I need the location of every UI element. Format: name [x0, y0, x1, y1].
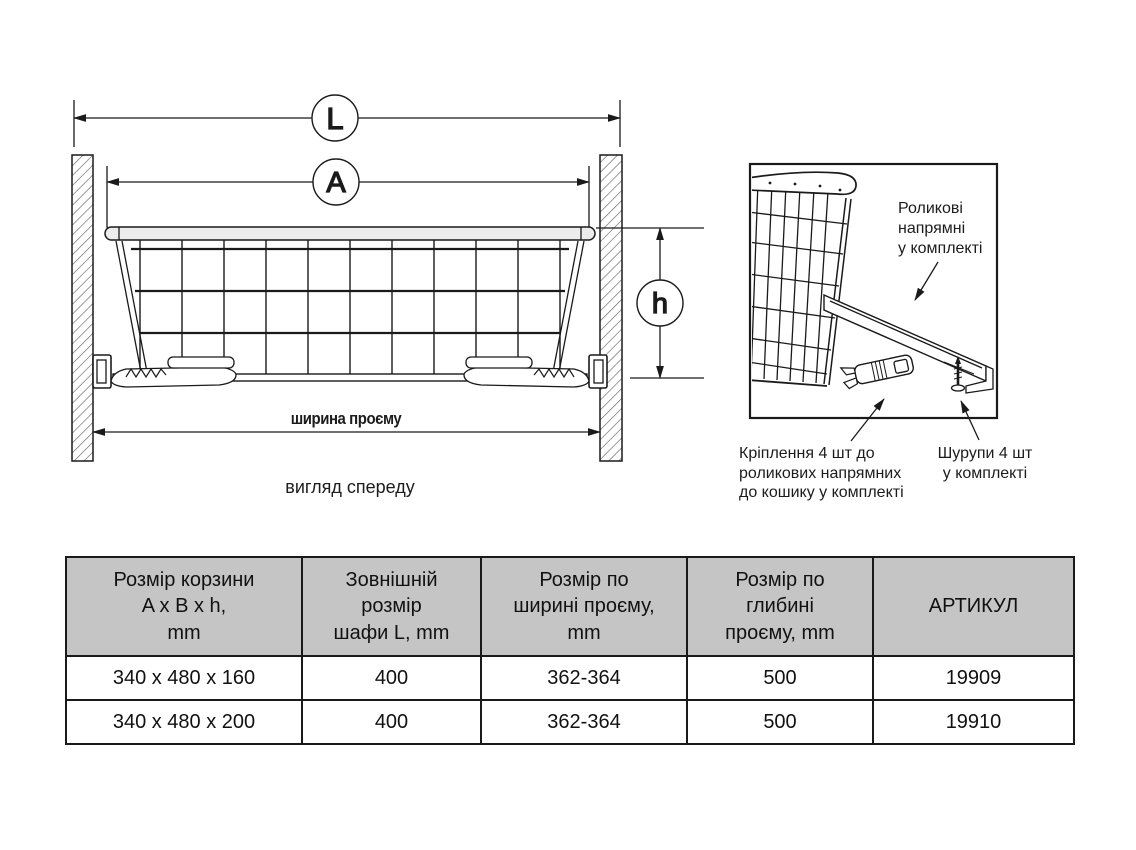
dimension-L: L — [74, 95, 620, 147]
cell-opening-depth: 500 — [687, 656, 873, 700]
col-header-article: АРТИКУЛ — [873, 557, 1074, 656]
cell-cabinet-size: 400 — [302, 700, 481, 744]
right-panel-hatch — [600, 155, 622, 461]
left-roller-bracket — [93, 355, 236, 388]
cell-article: 19910 — [873, 700, 1074, 744]
page: L A — [0, 0, 1136, 850]
rail-included-label: Роликові напрямні у комплекті — [898, 199, 1010, 259]
col-header-opening-depth: Розмір по глибині проєму, mm — [687, 557, 873, 656]
dimension-A: A — [107, 159, 589, 228]
cell-basket-size: 340 x 480 x 160 — [66, 656, 302, 700]
spec-table: Розмір корзини A x B x h, mm Зовнішній р… — [65, 556, 1075, 745]
clip-included-label: Кріплення 4 шт до роликових напрямних до… — [739, 444, 939, 503]
cell-basket-size: 340 x 480 x 200 — [66, 700, 302, 744]
front-view-caption: вигляд спереду — [250, 477, 450, 498]
cell-cabinet-size: 400 — [302, 656, 481, 700]
col-header-basket-size: Розмір корзини A x B x h, mm — [66, 557, 302, 656]
dim-label-L: L — [326, 101, 343, 136]
cell-opening-depth: 500 — [687, 700, 873, 744]
dim-label-A: A — [326, 167, 346, 199]
cell-article: 19909 — [873, 656, 1074, 700]
right-roller-bracket — [464, 355, 607, 388]
table-row: 340 x 480 x 200 400 362-364 500 19910 — [66, 700, 1074, 744]
col-header-opening-width: Розмір по ширині проєму, mm — [481, 557, 687, 656]
table-row: 340 x 480 x 160 400 362-364 500 19909 — [66, 656, 1074, 700]
col-header-cabinet-size: Зовнішній розмір шафи L, mm — [302, 557, 481, 656]
opening-width-label: ширина проєму — [245, 409, 447, 429]
cell-opening-width: 362-364 — [481, 700, 687, 744]
basket-top-rail — [105, 227, 595, 240]
left-panel-hatch — [72, 155, 93, 461]
screws-included-label: Шурупи 4 шт у комплекті — [923, 444, 1047, 483]
cell-opening-width: 362-364 — [481, 656, 687, 700]
table-header-row: Розмір корзини A x B x h, mm Зовнішній р… — [66, 557, 1074, 656]
front-view-drawing: L A — [72, 95, 704, 461]
dim-label-h: h — [652, 288, 668, 320]
